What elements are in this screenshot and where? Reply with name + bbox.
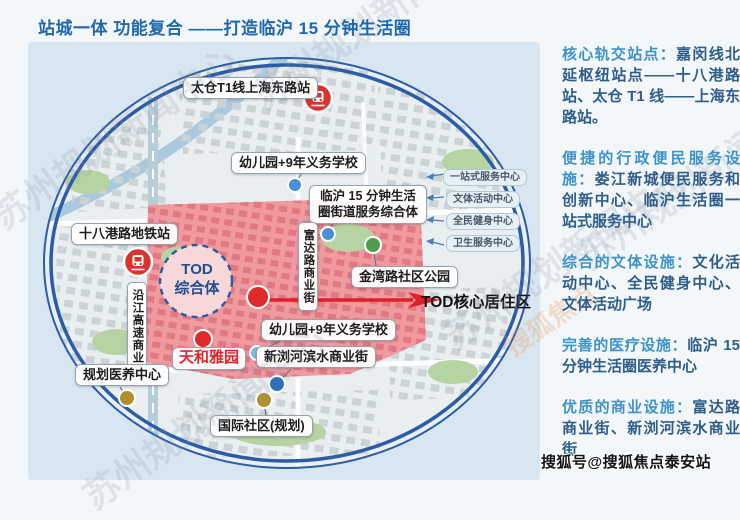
label-tianhe-garden: 天和雅园 (172, 347, 246, 370)
poi-dot-olive (256, 392, 272, 408)
section-label: 优质的商业设施： (562, 399, 692, 416)
infographic-page: 苏州规划新闻中心 苏州规划新闻中心 苏州规划新闻中心 苏州规划新闻中心 苏州规划… (0, 0, 740, 480)
poi-dot-olive (119, 390, 135, 406)
label-kindergarten-school-bottom: 幼儿园+9年义务学校 (261, 319, 396, 341)
label-tod-core-area: TOD核心居住区 (421, 290, 531, 312)
page-title: 站城一体 功能复合 ——打造临沪 15 分钟生活圈 (38, 14, 411, 39)
poi-dot-blue (288, 178, 302, 192)
metro-station-icon (124, 248, 152, 276)
label-tod-complex: TOD 综合体 (159, 261, 235, 299)
label-jinwan-park: 金湾路社区公园 (351, 266, 458, 288)
info-panel: 核心轨交站点：嘉闵线北延枢纽站点——十八港路站、太仓 T1 线——上海东路站。 … (562, 44, 740, 480)
section-label: 核心轨交站点： (562, 46, 676, 63)
poi-dot-red (194, 330, 212, 348)
label-taicang-station: 太仓T1线上海东路站 (183, 77, 318, 99)
poi-dot-darkblue (269, 376, 285, 392)
section-label: 完善的医疗设施： (562, 337, 687, 354)
pill-fitness-center: 全民健身中心 (446, 213, 520, 230)
poi-dot-blue (321, 227, 335, 241)
label-fuda-street: 富达路商业街 (298, 222, 318, 311)
tod-complex-line2: 综合体 (174, 280, 219, 297)
label-linhu-service-hub: 临沪 15 分钟生活 圈街道服务综合体 (309, 185, 427, 224)
poi-dot-red-large (247, 286, 269, 308)
info-section-medical: 完善的医疗设施：临沪 15 分钟生活圈医养中心 (562, 335, 740, 377)
label-xinliu-street: 新浏河滨水商业街 (256, 346, 376, 368)
info-section-admin-services: 便捷的行政便民服务设施：娄江新城便民服务和创新中心、临沪生活圈一站式服务中心 (562, 148, 740, 232)
section-label: 综合的文体设施： (562, 254, 692, 271)
poi-dot-green (365, 237, 381, 253)
pill-culture-sports-center: 文体活动中心 (446, 191, 520, 208)
label-intl-community: 国际社区(规划) (210, 415, 313, 437)
pill-one-stop-service-center: 一站式服务中心 (443, 169, 527, 186)
info-section-transit: 核心轨交站点：嘉闵线北延枢纽站点——十八港路站、太仓 T1 线——上海东路站。 (562, 44, 740, 128)
label-medical-center: 规划医养中心 (75, 364, 169, 386)
sohu-attribution: 搜狐号@搜狐焦点泰安站 (541, 451, 711, 472)
label-linhu-line1: 临沪 15 分钟生活 (320, 189, 416, 203)
tod-complex-line1: TOD (181, 261, 212, 278)
label-kindergarten-school-top: 幼儿园+9年义务学校 (231, 152, 366, 174)
pill-health-service-center: 卫生服务中心 (446, 235, 520, 252)
info-section-culture-sports: 综合的文体设施：文化活动中心、全民健身中心、文体活动广场 (562, 252, 740, 315)
label-shibagang-station: 十八港路地铁站 (71, 223, 178, 245)
label-linhu-line2: 圈街道服务综合体 (318, 205, 418, 219)
